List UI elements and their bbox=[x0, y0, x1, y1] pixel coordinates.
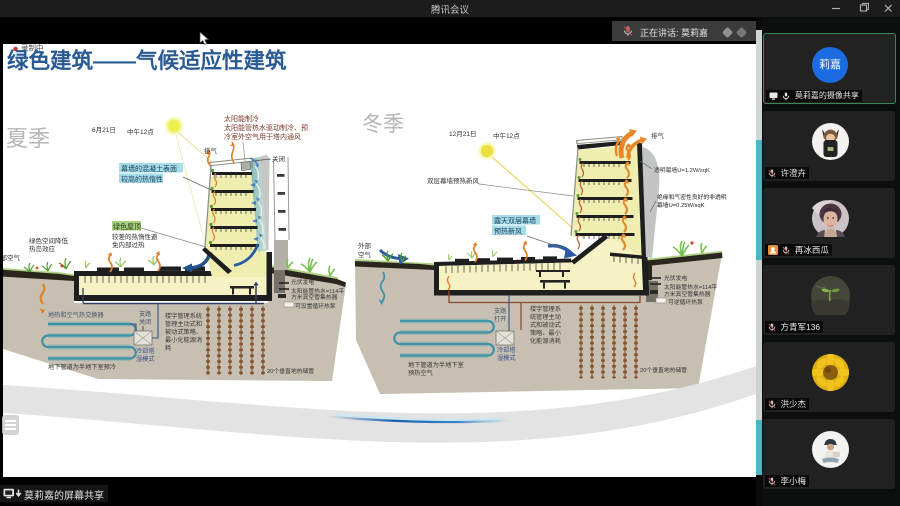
svg-text:式和被动式: 式和被动式 bbox=[530, 321, 561, 329]
svg-text:冷却塔: 冷却塔 bbox=[136, 347, 155, 355]
svg-text:排气: 排气 bbox=[204, 146, 218, 155]
svg-text:打开: 打开 bbox=[494, 315, 506, 323]
svg-text:幕墙U=0.25W/sqK: 幕墙U=0.25W/sqK bbox=[657, 201, 705, 209]
svg-text:楼宇管理系统: 楼宇管理系统 bbox=[165, 312, 202, 320]
svg-text:支路: 支路 bbox=[494, 307, 507, 315]
svg-text:最小化能源消: 最小化能源消 bbox=[165, 336, 202, 344]
svg-text:策略、最小: 策略、最小 bbox=[530, 329, 562, 337]
svg-text:可设置循环热泵: 可设置循环热泵 bbox=[295, 302, 336, 310]
svg-text:外部: 外部 bbox=[358, 241, 372, 250]
svg-text:光伏发电: 光伏发电 bbox=[664, 274, 687, 282]
svg-text:支路: 支路 bbox=[139, 310, 152, 318]
svg-text:绿色空间降低: 绿色空间降低 bbox=[29, 236, 69, 245]
svg-text:12月21日: 12月21日 bbox=[449, 130, 476, 138]
svg-text:20个垂直地热储管: 20个垂直地热储管 bbox=[267, 367, 314, 375]
svg-text:太阳能管热水驱动制冷、预: 太阳能管热水驱动制冷、预 bbox=[224, 123, 308, 132]
svg-text:免内部过热: 免内部过热 bbox=[112, 240, 145, 249]
svg-text:方米真空管集热器: 方米真空管集热器 bbox=[291, 293, 338, 301]
svg-text:统管理主动: 统管理主动 bbox=[530, 313, 561, 321]
svg-text:热岛效应: 热岛效应 bbox=[29, 244, 56, 253]
svg-text:幕墙的混凝土表面: 幕墙的混凝土表面 bbox=[121, 164, 177, 173]
svg-text:可逆循环热泵: 可逆循环热泵 bbox=[668, 298, 703, 306]
svg-text:露天双层幕墙: 露天双层幕墙 bbox=[494, 216, 536, 225]
svg-text:管理主动式和: 管理主动式和 bbox=[165, 320, 202, 328]
svg-text:绝缘和气密性良好的非透明: 绝缘和气密性良好的非透明 bbox=[657, 193, 727, 201]
svg-text:耗: 耗 bbox=[165, 344, 171, 352]
svg-text:太阳能管热水=114平: 太阳能管热水=114平 bbox=[664, 283, 717, 291]
svg-text:20个垂直地热储管: 20个垂直地热储管 bbox=[640, 366, 687, 374]
svg-text:外部空气: 外部空气 bbox=[3, 253, 21, 262]
svg-text:被动式策略、: 被动式策略、 bbox=[165, 328, 202, 336]
svg-text:透明幕墙U=1.2W/sqK: 透明幕墙U=1.2W/sqK bbox=[654, 166, 710, 174]
svg-text:绿色建筑——气候适应性建筑: 绿色建筑——气候适应性建筑 bbox=[7, 48, 287, 73]
svg-text:预热新风: 预热新风 bbox=[494, 227, 522, 236]
svg-text:夏季: 夏季 bbox=[6, 126, 50, 151]
svg-text:绿色屋顶: 绿色屋顶 bbox=[113, 222, 141, 231]
svg-text:地下管道为半地下室: 地下管道为半地下室 bbox=[408, 361, 464, 369]
svg-text:冷室外空气用于塔内通风: 冷室外空气用于塔内通风 bbox=[224, 132, 301, 141]
svg-text:光伏发电: 光伏发电 bbox=[291, 278, 314, 286]
svg-text:湿模式: 湿模式 bbox=[497, 354, 516, 362]
svg-text:关闭: 关闭 bbox=[272, 154, 285, 163]
svg-text:6月21日: 6月21日 bbox=[92, 126, 116, 134]
svg-text:方米真空管集热器: 方米真空管集热器 bbox=[664, 290, 711, 298]
svg-text:湿模式: 湿模式 bbox=[136, 355, 155, 363]
svg-text:关闭: 关闭 bbox=[139, 318, 151, 326]
svg-text:预热空气: 预热空气 bbox=[408, 369, 433, 377]
svg-text:中午12点: 中午12点 bbox=[127, 127, 154, 136]
svg-text:双层幕墙预热新风: 双层幕墙预热新风 bbox=[427, 176, 480, 185]
svg-text:较差的热惰性避: 较差的热惰性避 bbox=[112, 232, 158, 241]
svg-text:排气: 排气 bbox=[651, 131, 665, 140]
svg-text:化能源消耗: 化能源消耗 bbox=[530, 337, 561, 345]
svg-text:冬季: 冬季 bbox=[362, 113, 404, 136]
svg-text:中午12点: 中午12点 bbox=[493, 131, 520, 140]
svg-text:楼宇管理系: 楼宇管理系 bbox=[530, 305, 561, 313]
svg-text:地下管道为半地下室预冷: 地下管道为半地下室预冷 bbox=[48, 363, 116, 371]
svg-text:较高的热惰性: 较高的热惰性 bbox=[121, 175, 163, 184]
svg-text:太阳能管热水=114平: 太阳能管热水=114平 bbox=[291, 287, 344, 295]
svg-text:空气: 空气 bbox=[358, 250, 372, 259]
svg-text:地热和空气热交换器: 地热和空气热交换器 bbox=[48, 311, 104, 319]
svg-text:太阳能制冷: 太阳能制冷 bbox=[224, 114, 259, 123]
svg-text:冷却塔: 冷却塔 bbox=[497, 346, 516, 354]
